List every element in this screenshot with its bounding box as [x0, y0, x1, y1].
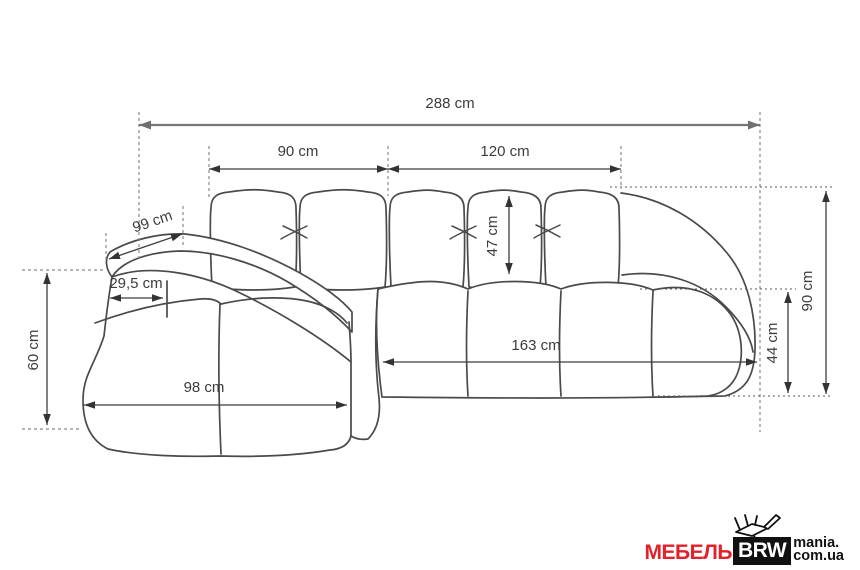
logo-box-text: BRW [738, 539, 786, 562]
technical-drawing: 288 cm 90 cm 12 [0, 0, 860, 570]
dim-seat-width-label: 163 cm [511, 337, 560, 354]
back-cushion-3 [389, 190, 464, 290]
dim-chaise-height-label: 60 cm [25, 330, 42, 371]
back-cushion-5 [544, 190, 619, 290]
dim-total-width: 288 cm [139, 95, 760, 130]
logo-domain: mania. com.ua [791, 537, 844, 565]
logo-brand-box: BRW [733, 537, 791, 565]
dim-back-left-label: 90 cm [278, 143, 319, 160]
dim-chaise-width-label: 98 cm [184, 379, 225, 396]
sofa-dimensions-diagram: 288 cm 90 cm 12 [0, 0, 860, 570]
logo-domain-bottom: com.ua [793, 550, 844, 563]
sofa-illustration [83, 190, 755, 457]
corner-crease [351, 288, 379, 439]
dim-side-depth-label: 99 cm [130, 207, 174, 236]
dim-back-right-label: 120 cm [480, 143, 529, 160]
logo-brand-text: МЕБЕЛЬ [645, 542, 732, 565]
dim-back-cushion-height-label: 47 cm [484, 216, 501, 257]
back-cushion-2 [299, 190, 386, 290]
dim-seat-height-label: 44 cm [764, 323, 781, 364]
dim-total-width-label: 288 cm [425, 95, 474, 112]
dim-armrest-width-label: 29,5 cm [109, 275, 162, 292]
chair-icon [731, 512, 783, 539]
dim-total-height-label: 90 cm [799, 271, 816, 312]
store-logo: МЕБЕЛЬ BRW mania. com.ua [645, 537, 844, 565]
back-cushion-4 [467, 190, 541, 290]
